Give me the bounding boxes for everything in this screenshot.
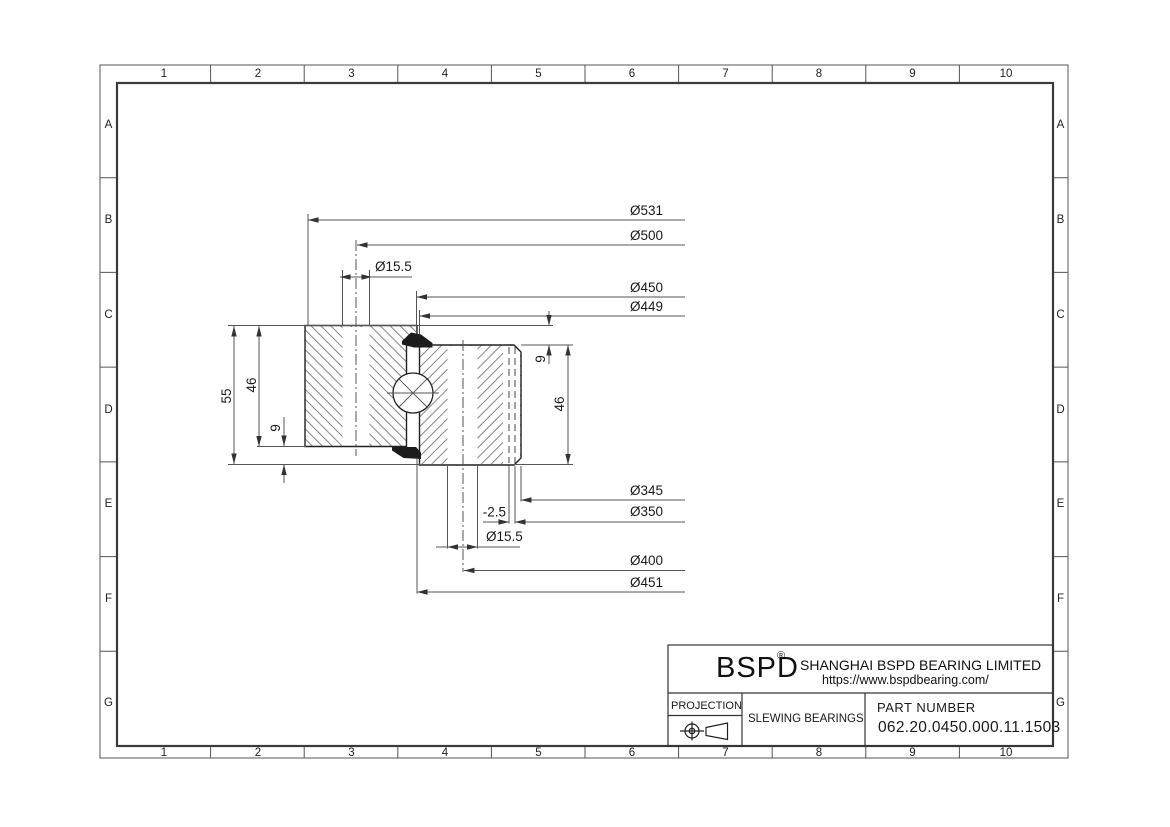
- drawing-frame: [117, 83, 1053, 746]
- dim-tooth-offset: -2.5: [483, 505, 506, 520]
- dim-inner-ring-height: 46: [552, 396, 567, 411]
- grid-col-label-top: 9: [909, 68, 915, 80]
- grid-col-label-top: 1: [161, 68, 167, 80]
- dim-raceway-recess: Ø449: [630, 299, 663, 314]
- engineering-drawing-canvas: Ø531 Ø500 Ø15.5 Ø450 Ø449 Ø345 -2.5 Ø350…: [0, 0, 1170, 827]
- grid-col-label-bottom: 3: [348, 747, 354, 759]
- dim-bore: Ø350: [630, 504, 663, 519]
- grid-col-label-bottom: 5: [535, 747, 541, 759]
- projection-symbol-icon: [680, 722, 728, 741]
- grid-col-label-bottom: 1: [161, 747, 167, 759]
- grid-row-label-left: G: [104, 697, 113, 709]
- grid-col-label-top: 6: [629, 68, 635, 80]
- grid-col-label-bottom: 7: [722, 747, 728, 759]
- grid-col-label-top: 10: [1000, 68, 1013, 80]
- grid-row-label-left: C: [104, 309, 112, 321]
- drawing-sheet: Ø531 Ø500 Ø15.5 Ø450 Ø449 Ø345 -2.5 Ø350…: [0, 0, 1170, 827]
- grid-row-label-left: B: [105, 214, 113, 226]
- sheet-border: [100, 65, 1068, 758]
- dim-bottom-offset: 9: [268, 424, 283, 432]
- grid-row-label-right: A: [1057, 119, 1065, 131]
- grid-col-label-bottom: 8: [816, 747, 822, 759]
- dim-inner-ring-outer: Ø451: [630, 575, 663, 590]
- grid-col-label-top: 3: [348, 68, 354, 80]
- grid-row-label-right: G: [1056, 697, 1065, 709]
- grid-col-label-top: 5: [535, 68, 541, 80]
- grid-col-label-bottom: 4: [442, 747, 448, 759]
- bearing-cross-section: Ø531 Ø500 Ø15.5 Ø450 Ø449 Ø345 -2.5 Ø350…: [219, 203, 685, 595]
- grid-col-label-top: 7: [722, 68, 728, 80]
- bottom-seal: [392, 447, 421, 459]
- grid-row-label-left: F: [105, 593, 112, 605]
- dim-gear-tip: Ø345: [630, 483, 663, 498]
- company-name: SHANGHAI BSPD BEARING LIMITED: [800, 657, 1041, 673]
- dim-outer-bolt-circle: Ø500: [630, 228, 663, 243]
- grid-col-label-bottom: 10: [1000, 747, 1013, 759]
- dim-inner-bolt-circle: Ø400: [630, 553, 663, 568]
- grid-col-label-bottom: 2: [255, 747, 261, 759]
- grid-col-label-bottom: 6: [629, 747, 635, 759]
- grid-row-label-right: C: [1056, 309, 1064, 321]
- grid-row-label-left: D: [104, 404, 112, 416]
- grid-col-label-top: 8: [816, 68, 822, 80]
- dim-outer-diameter: Ø531: [630, 203, 663, 218]
- dim-total-height: 55: [219, 388, 234, 403]
- projection-label: PROJECTION: [671, 700, 742, 712]
- registered-trademark-icon: ®: [777, 650, 785, 662]
- grid-col-label-bottom: 9: [909, 747, 915, 759]
- grid-row-label-right: E: [1057, 498, 1065, 510]
- part-number-label: PART NUMBER: [877, 700, 976, 715]
- dim-raceway-outer: Ø450: [630, 280, 663, 295]
- grid-row-label-right: B: [1057, 214, 1065, 226]
- company-logo: BSPD: [716, 652, 799, 685]
- grid-col-label-top: 4: [442, 68, 448, 80]
- dim-outer-hole: Ø15.5: [375, 259, 412, 274]
- grid-row-label-left: A: [105, 119, 113, 131]
- grid-col-label-top: 2: [255, 68, 261, 80]
- company-website-link[interactable]: https://www.bspdbearing.com/: [822, 673, 989, 687]
- part-number-value: 062.20.0450.000.11.1503: [878, 719, 1060, 737]
- dim-top-offset: 9: [533, 355, 548, 363]
- grid-row-label-right: D: [1056, 404, 1064, 416]
- dim-inner-hole: Ø15.5: [486, 529, 523, 544]
- dim-outer-ring-height: 46: [244, 377, 259, 392]
- grid-row-label-left: E: [105, 498, 113, 510]
- product-type-label: SLEWING BEARINGS: [748, 713, 864, 725]
- grid-row-label-right: F: [1057, 593, 1064, 605]
